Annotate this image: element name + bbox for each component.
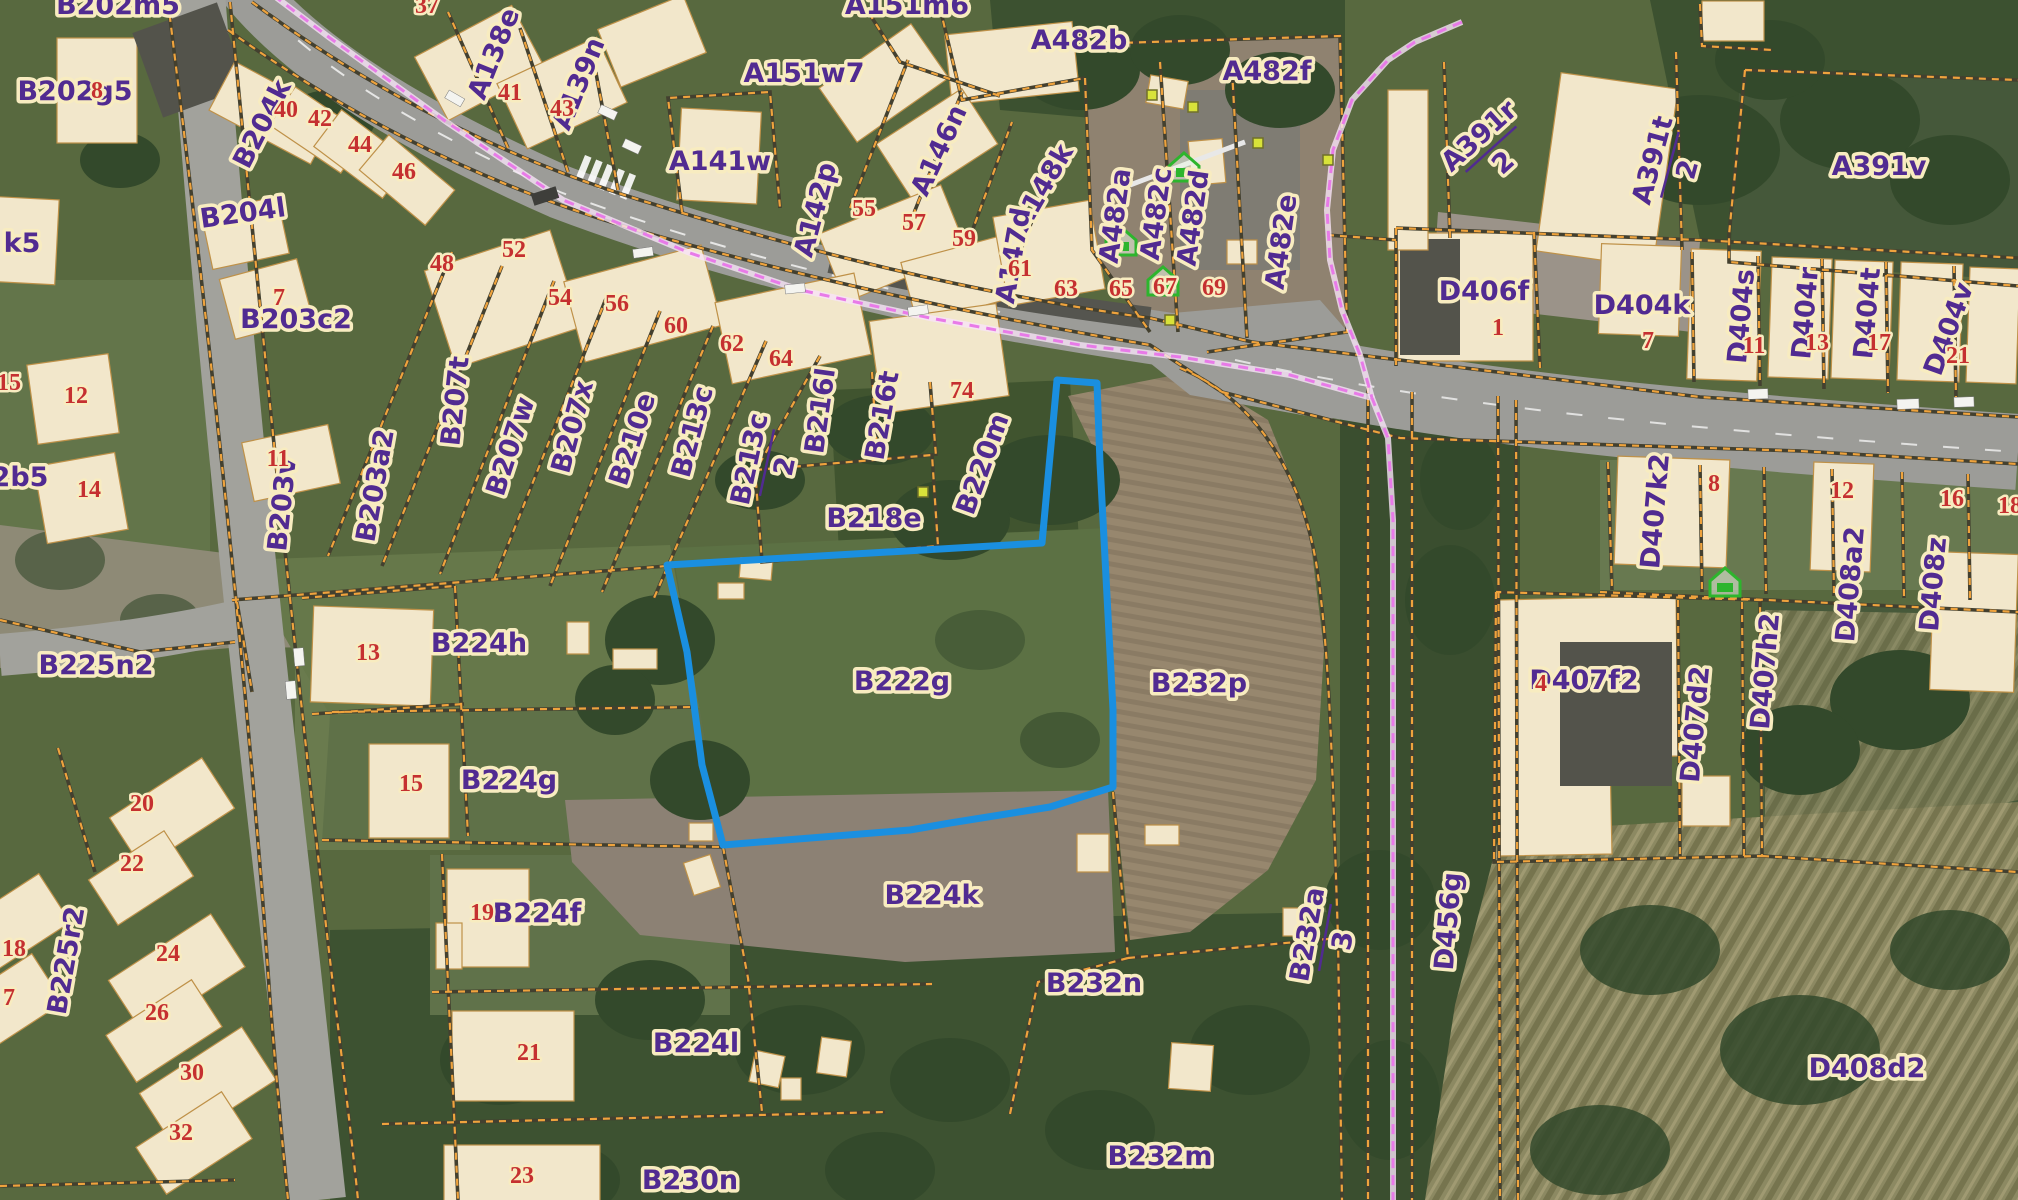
house-number: 4 — [1535, 671, 1547, 697]
house-number: 46 — [392, 159, 416, 185]
parcel-label: A482b — [1031, 25, 1128, 56]
house-number: 41 — [498, 80, 522, 106]
house-number: 21 — [517, 1040, 541, 1066]
house-number: 59 — [952, 226, 976, 252]
parcel-label: B222g — [854, 666, 950, 697]
house-number: 40 — [274, 97, 298, 123]
house-number: 14 — [77, 477, 101, 503]
parcel-label: A141w — [669, 146, 771, 177]
house-number: 18 — [1998, 493, 2018, 519]
house-number: 13 — [1805, 330, 1829, 356]
house-number: 65 — [1109, 276, 1133, 302]
corner-dot-icon — [1147, 90, 1157, 100]
corner-dot-icon — [1188, 102, 1198, 112]
parcel-label: B225n2 — [39, 650, 154, 681]
house-number: 15 — [399, 771, 423, 797]
house-number: 30 — [180, 1060, 204, 1086]
parcel-label: 2b5 — [0, 462, 48, 493]
house-number: 7 — [273, 285, 285, 311]
house-number: 19 — [470, 900, 494, 926]
house-number: 60 — [664, 313, 688, 339]
house-number: 74 — [950, 378, 974, 404]
map-viewport[interactable]: B213c2B232a3A391r2A391t2 B202m5B202g5k5B… — [0, 0, 2018, 1200]
parcel-label: B232m — [1107, 1141, 1212, 1172]
house-number: 42 — [308, 106, 332, 132]
corner-dot-icon — [1323, 155, 1333, 165]
parcel-label: B230n — [642, 1165, 738, 1196]
house-number: 62 — [720, 331, 744, 357]
house-number: 12 — [1830, 478, 1854, 504]
house-number: 24 — [156, 941, 180, 967]
house-number: 48 — [430, 251, 454, 277]
parcel-label: B224k — [885, 880, 981, 911]
house-number: 8 — [1708, 471, 1720, 497]
house-number: 11 — [267, 446, 290, 472]
house-number: 26 — [145, 1000, 169, 1026]
house-number: 7 — [1642, 328, 1654, 354]
house-number: 12 — [64, 383, 88, 409]
parcel-label: A151w7 — [744, 58, 865, 89]
parcel-label: A482f — [1222, 56, 1311, 87]
house-number: 64 — [769, 346, 793, 372]
parcel-label: B232n — [1046, 968, 1142, 999]
house-number: 52 — [502, 237, 526, 263]
parcel-label: B224l — [653, 1028, 739, 1059]
house-number: 21 — [1946, 343, 1970, 369]
parcel-label: D404k — [1594, 290, 1692, 321]
house-number: 7 — [3, 985, 15, 1011]
parcel-label: A151m6 — [845, 0, 969, 21]
house-number: 16 — [1940, 486, 1964, 512]
parcel-label: D406f — [1439, 276, 1530, 307]
house-number: 32 — [169, 1120, 193, 1146]
house-number: 43 — [550, 96, 574, 122]
cadastral-map[interactable]: B213c2B232a3A391r2A391t2 B202m5B202g5k5B… — [0, 0, 2018, 1200]
parcel-label: B202g5 — [17, 76, 132, 107]
parcel-label: B224f — [493, 898, 582, 929]
house-number: 1 — [1492, 315, 1504, 341]
house-number: 55 — [852, 196, 876, 222]
corner-dot-icon — [1253, 138, 1263, 148]
parcel-label: A391v — [1832, 151, 1927, 182]
parcel-label: B224g — [461, 765, 557, 796]
house-number: 69 — [1202, 275, 1226, 301]
house-number: 67 — [1153, 274, 1177, 300]
house-number: 37 — [415, 0, 439, 19]
house-number: 23 — [510, 1163, 534, 1189]
corner-dot-icon — [918, 487, 928, 497]
parcel-label: k5 — [4, 228, 41, 259]
parcel-label: B202m5 — [56, 0, 180, 21]
house-number: 56 — [605, 291, 629, 317]
parcel-label: B224h — [431, 628, 527, 659]
house-number: 8 — [91, 78, 103, 104]
parcel-label: B203c2 — [240, 304, 352, 335]
house-number: 20 — [130, 791, 154, 817]
house-number: 63 — [1054, 276, 1078, 302]
parcel-label: B218e — [826, 503, 921, 534]
house-number: 22 — [120, 851, 144, 877]
house-number: 17 — [1867, 330, 1891, 356]
house-number: 18 — [2, 936, 26, 962]
house-number: 57 — [902, 210, 926, 236]
house-number: 15 — [0, 370, 21, 396]
parcel-label: D408d2 — [1809, 1053, 1926, 1084]
parcel-label: B232p — [1151, 668, 1247, 699]
house-number: 13 — [356, 640, 380, 666]
house-number: 44 — [348, 132, 372, 158]
house-number: 11 — [1743, 333, 1766, 359]
corner-dot-icon — [1165, 315, 1175, 325]
house-number: 54 — [548, 285, 572, 311]
house-number: 61 — [1008, 256, 1032, 282]
